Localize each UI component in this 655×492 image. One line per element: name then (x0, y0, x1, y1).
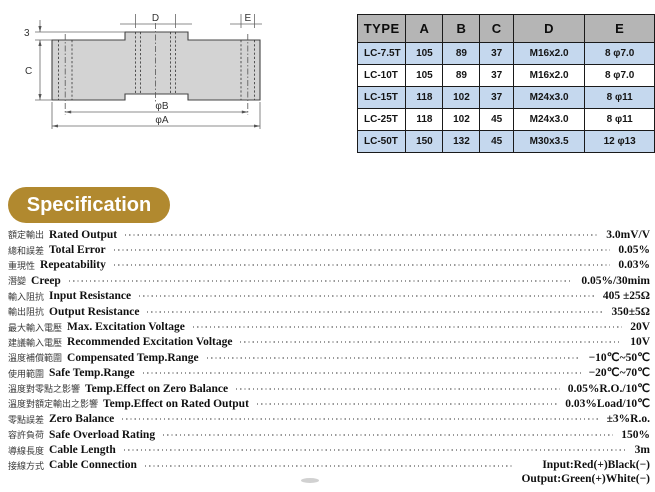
cell-type: LC-7.5T (358, 43, 406, 65)
dotted-leader (114, 249, 611, 251)
spec-value: 3.0mV/V (606, 228, 650, 242)
dotted-leader (145, 465, 514, 467)
spec-value: Input:Red(+)Black(−) Output:Green(+)Whit… (521, 458, 650, 486)
dimension-table-header-row: TYPE A B C D E (358, 15, 655, 43)
spec-value: 350±5Ω (611, 305, 650, 319)
cell-d: M16x2.0 (513, 43, 584, 65)
spec-label-zh: 建議輸入電壓 (8, 336, 62, 349)
spec-label-en: Repeatability (40, 259, 106, 271)
spec-label-zh: 潛變 (8, 274, 26, 287)
spec-value: 150% (621, 428, 650, 442)
spec-label-zh: 輸入阻抗 (8, 290, 44, 303)
dotted-leader (114, 264, 611, 266)
dim-c-label: C (25, 66, 32, 77)
spec-row-recommended-excitation: 建議輸入電壓 Recommended Excitation Voltage 10… (8, 335, 650, 350)
cell-b: 132 (443, 131, 480, 153)
spec-row-safe-overload: 容許負荷 Safe Overload Rating 150% (8, 427, 650, 442)
spec-row-safe-temp: 使用範圍 Safe Temp.Range −20℃~70℃ (8, 366, 650, 381)
cell-a: 105 (406, 43, 443, 65)
cell-c: 45 (480, 109, 513, 131)
spec-label-zh: 溫度對零點之影響 (8, 382, 80, 395)
spec-label-zh: 重現性 (8, 259, 35, 272)
spec-label-en: Max. Excitation Voltage (67, 321, 185, 333)
spec-value: 0.03% (618, 258, 650, 272)
cell-e: 8 φ7.0 (585, 43, 655, 65)
spec-row-cable-length: 導線長度 Cable Length 3m (8, 442, 650, 457)
spec-row-zero-balance: 零點誤差 Zero Balance ±3%R.o. (8, 412, 650, 427)
spec-label-zh: 最大輸入電壓 (8, 321, 62, 334)
cell-c: 37 (480, 87, 513, 109)
dim-phi-a-label: φA (155, 115, 168, 126)
header-b: B (443, 15, 480, 43)
spec-label-zh: 使用範圍 (8, 367, 44, 380)
spec-value: 0.05%/30mim (581, 274, 650, 288)
cell-b: 102 (443, 87, 480, 109)
load-cell-drawing: 3 C D E φB φA (0, 0, 355, 180)
cell-a: 118 (406, 109, 443, 131)
spec-label-zh: 輸出阻抗 (8, 305, 44, 318)
dotted-leader (122, 418, 598, 420)
spec-row-max-excitation: 最大輸入電壓 Max. Excitation Voltage 20V (8, 319, 650, 334)
dotted-leader (193, 326, 622, 328)
specification-heading-label: Specification (27, 194, 151, 217)
dotted-leader (207, 357, 581, 359)
cell-b: 102 (443, 109, 480, 131)
cell-b: 89 (443, 65, 480, 87)
spec-label-en: Compensated Temp.Range (67, 352, 199, 364)
table-row: LC-25T 118 102 45 M24x3.0 8 φ11 (358, 109, 655, 131)
dotted-leader (240, 341, 622, 343)
cell-d: M24x3.0 (513, 109, 584, 131)
spec-label-en: Rated Output (49, 229, 117, 241)
cell-type: LC-15T (358, 87, 406, 109)
spec-row-rated-output: 額定輸出 Rated Output 3.0mV/V (8, 227, 650, 242)
spec-label-en: Temp.Effect on Rated Output (103, 398, 249, 410)
cell-a: 105 (406, 65, 443, 87)
dotted-leader (124, 449, 627, 451)
spec-label-en: Temp.Effect on Zero Balance (85, 383, 228, 395)
header-type: TYPE (358, 15, 406, 43)
spec-label-en: Cable Connection (49, 459, 137, 471)
spec-row-output-resistance: 輸出阻抗 Output Resistance 350±5Ω (8, 304, 650, 319)
dotted-leader (147, 311, 603, 313)
dotted-leader (125, 234, 598, 236)
header-c: C (480, 15, 513, 43)
cell-c: 37 (480, 43, 513, 65)
spec-value-line1: Input:Red(+)Black(−) (521, 458, 650, 472)
spec-row-cable-connection: 接線方式 Cable Connection Input:Red(+)Black(… (8, 458, 650, 486)
load-cell-body (52, 32, 260, 100)
cell-type: LC-10T (358, 65, 406, 87)
dim-3-label: 3 (24, 28, 30, 39)
spec-value: −10℃~50℃ (589, 351, 650, 365)
page-number-mark (301, 478, 319, 483)
spec-label-zh: 容許負荷 (8, 428, 44, 441)
spec-label-en: Output Resistance (49, 306, 139, 318)
cell-type: LC-25T (358, 109, 406, 131)
spec-label-zh: 零點誤差 (8, 413, 44, 426)
dim-phi-b-label: φB (155, 101, 168, 112)
spec-sheet-page: 3 C D E φB φA TYPE A B C D E LC-7.5T 105… (0, 0, 655, 492)
spec-label-en: Total Error (49, 244, 106, 256)
spec-value: 20V (630, 320, 650, 334)
spec-row-compensated-temp: 溫度補償範圍 Compensated Temp.Range −10℃~50℃ (8, 350, 650, 365)
spec-label-en: Safe Temp.Range (49, 367, 135, 379)
spec-label-zh: 溫度對額定輸出之影響 (8, 397, 98, 410)
cell-a: 150 (406, 131, 443, 153)
cell-d: M24x3.0 (513, 87, 584, 109)
spec-row-repeatability: 重現性 Repeatability 0.03% (8, 258, 650, 273)
spec-value: 0.05% (618, 243, 650, 257)
spec-row-creep: 潛變 Creep 0.05%/30mim (8, 273, 650, 288)
specification-list: 額定輸出 Rated Output 3.0mV/V 總和誤差 Total Err… (8, 227, 650, 486)
spec-label-en: Safe Overload Rating (49, 429, 155, 441)
cell-d: M16x2.0 (513, 65, 584, 87)
header-d: D (513, 15, 584, 43)
cell-c: 45 (480, 131, 513, 153)
spec-label-zh: 導線長度 (8, 444, 44, 457)
cell-c: 37 (480, 65, 513, 87)
dimension-table: TYPE A B C D E LC-7.5T 105 89 37 M16x2.0… (357, 14, 655, 153)
spec-label-en: Recommended Excitation Voltage (67, 336, 232, 348)
spec-label-en: Creep (31, 275, 61, 287)
spec-value: 10V (630, 335, 650, 349)
spec-row-temp-effect-rated: 溫度對額定輸出之影響 Temp.Effect on Rated Output 0… (8, 396, 650, 411)
header-e: E (585, 15, 655, 43)
dotted-leader (236, 388, 560, 390)
spec-value-line2: Output:Green(+)White(−) (521, 472, 650, 486)
cell-e: 8 φ11 (585, 109, 655, 131)
cell-e: 8 φ11 (585, 87, 655, 109)
header-a: A (406, 15, 443, 43)
spec-label-zh: 接線方式 (8, 459, 44, 472)
cell-type: LC-50T (358, 131, 406, 153)
cell-d: M30x3.5 (513, 131, 584, 153)
spec-label-en: Zero Balance (49, 413, 114, 425)
spec-label-zh: 額定輸出 (8, 228, 44, 241)
cell-b: 89 (443, 43, 480, 65)
spec-row-input-resistance: 輸入阻抗 Input Resistance 405 ±25Ω (8, 289, 650, 304)
dotted-leader (257, 403, 557, 405)
table-row: LC-10T 105 89 37 M16x2.0 8 φ7.0 (358, 65, 655, 87)
cell-a: 118 (406, 87, 443, 109)
dotted-leader (69, 280, 573, 282)
spec-row-temp-effect-zero: 溫度對零點之影響 Temp.Effect on Zero Balance 0.0… (8, 381, 650, 396)
dim-e-label: E (244, 13, 251, 24)
cell-e: 8 φ7.0 (585, 65, 655, 87)
dotted-leader (139, 295, 595, 297)
dotted-leader (163, 434, 613, 436)
spec-label-zh: 溫度補償範圍 (8, 351, 62, 364)
spec-label-en: Input Resistance (49, 290, 131, 302)
spec-value: ±3%R.o. (607, 412, 650, 426)
table-row: LC-50T 150 132 45 M30x3.5 12 φ13 (358, 131, 655, 153)
cell-e: 12 φ13 (585, 131, 655, 153)
spec-value: 0.05%R.O./10℃ (568, 382, 650, 396)
table-row: LC-15T 118 102 37 M24x3.0 8 φ11 (358, 87, 655, 109)
dim-d-label: D (152, 13, 159, 24)
spec-value: 0.03%Load/10℃ (565, 397, 650, 411)
table-row: LC-7.5T 105 89 37 M16x2.0 8 φ7.0 (358, 43, 655, 65)
spec-value: −20℃~70℃ (589, 366, 650, 380)
spec-value: 3m (635, 443, 650, 457)
dotted-leader (143, 372, 581, 374)
spec-row-total-error: 總和誤差 Total Error 0.05% (8, 242, 650, 257)
spec-value: 405 ±25Ω (603, 289, 650, 303)
spec-label-en: Cable Length (49, 444, 116, 456)
spec-label-zh: 總和誤差 (8, 244, 44, 257)
specification-heading: Specification (8, 187, 170, 223)
